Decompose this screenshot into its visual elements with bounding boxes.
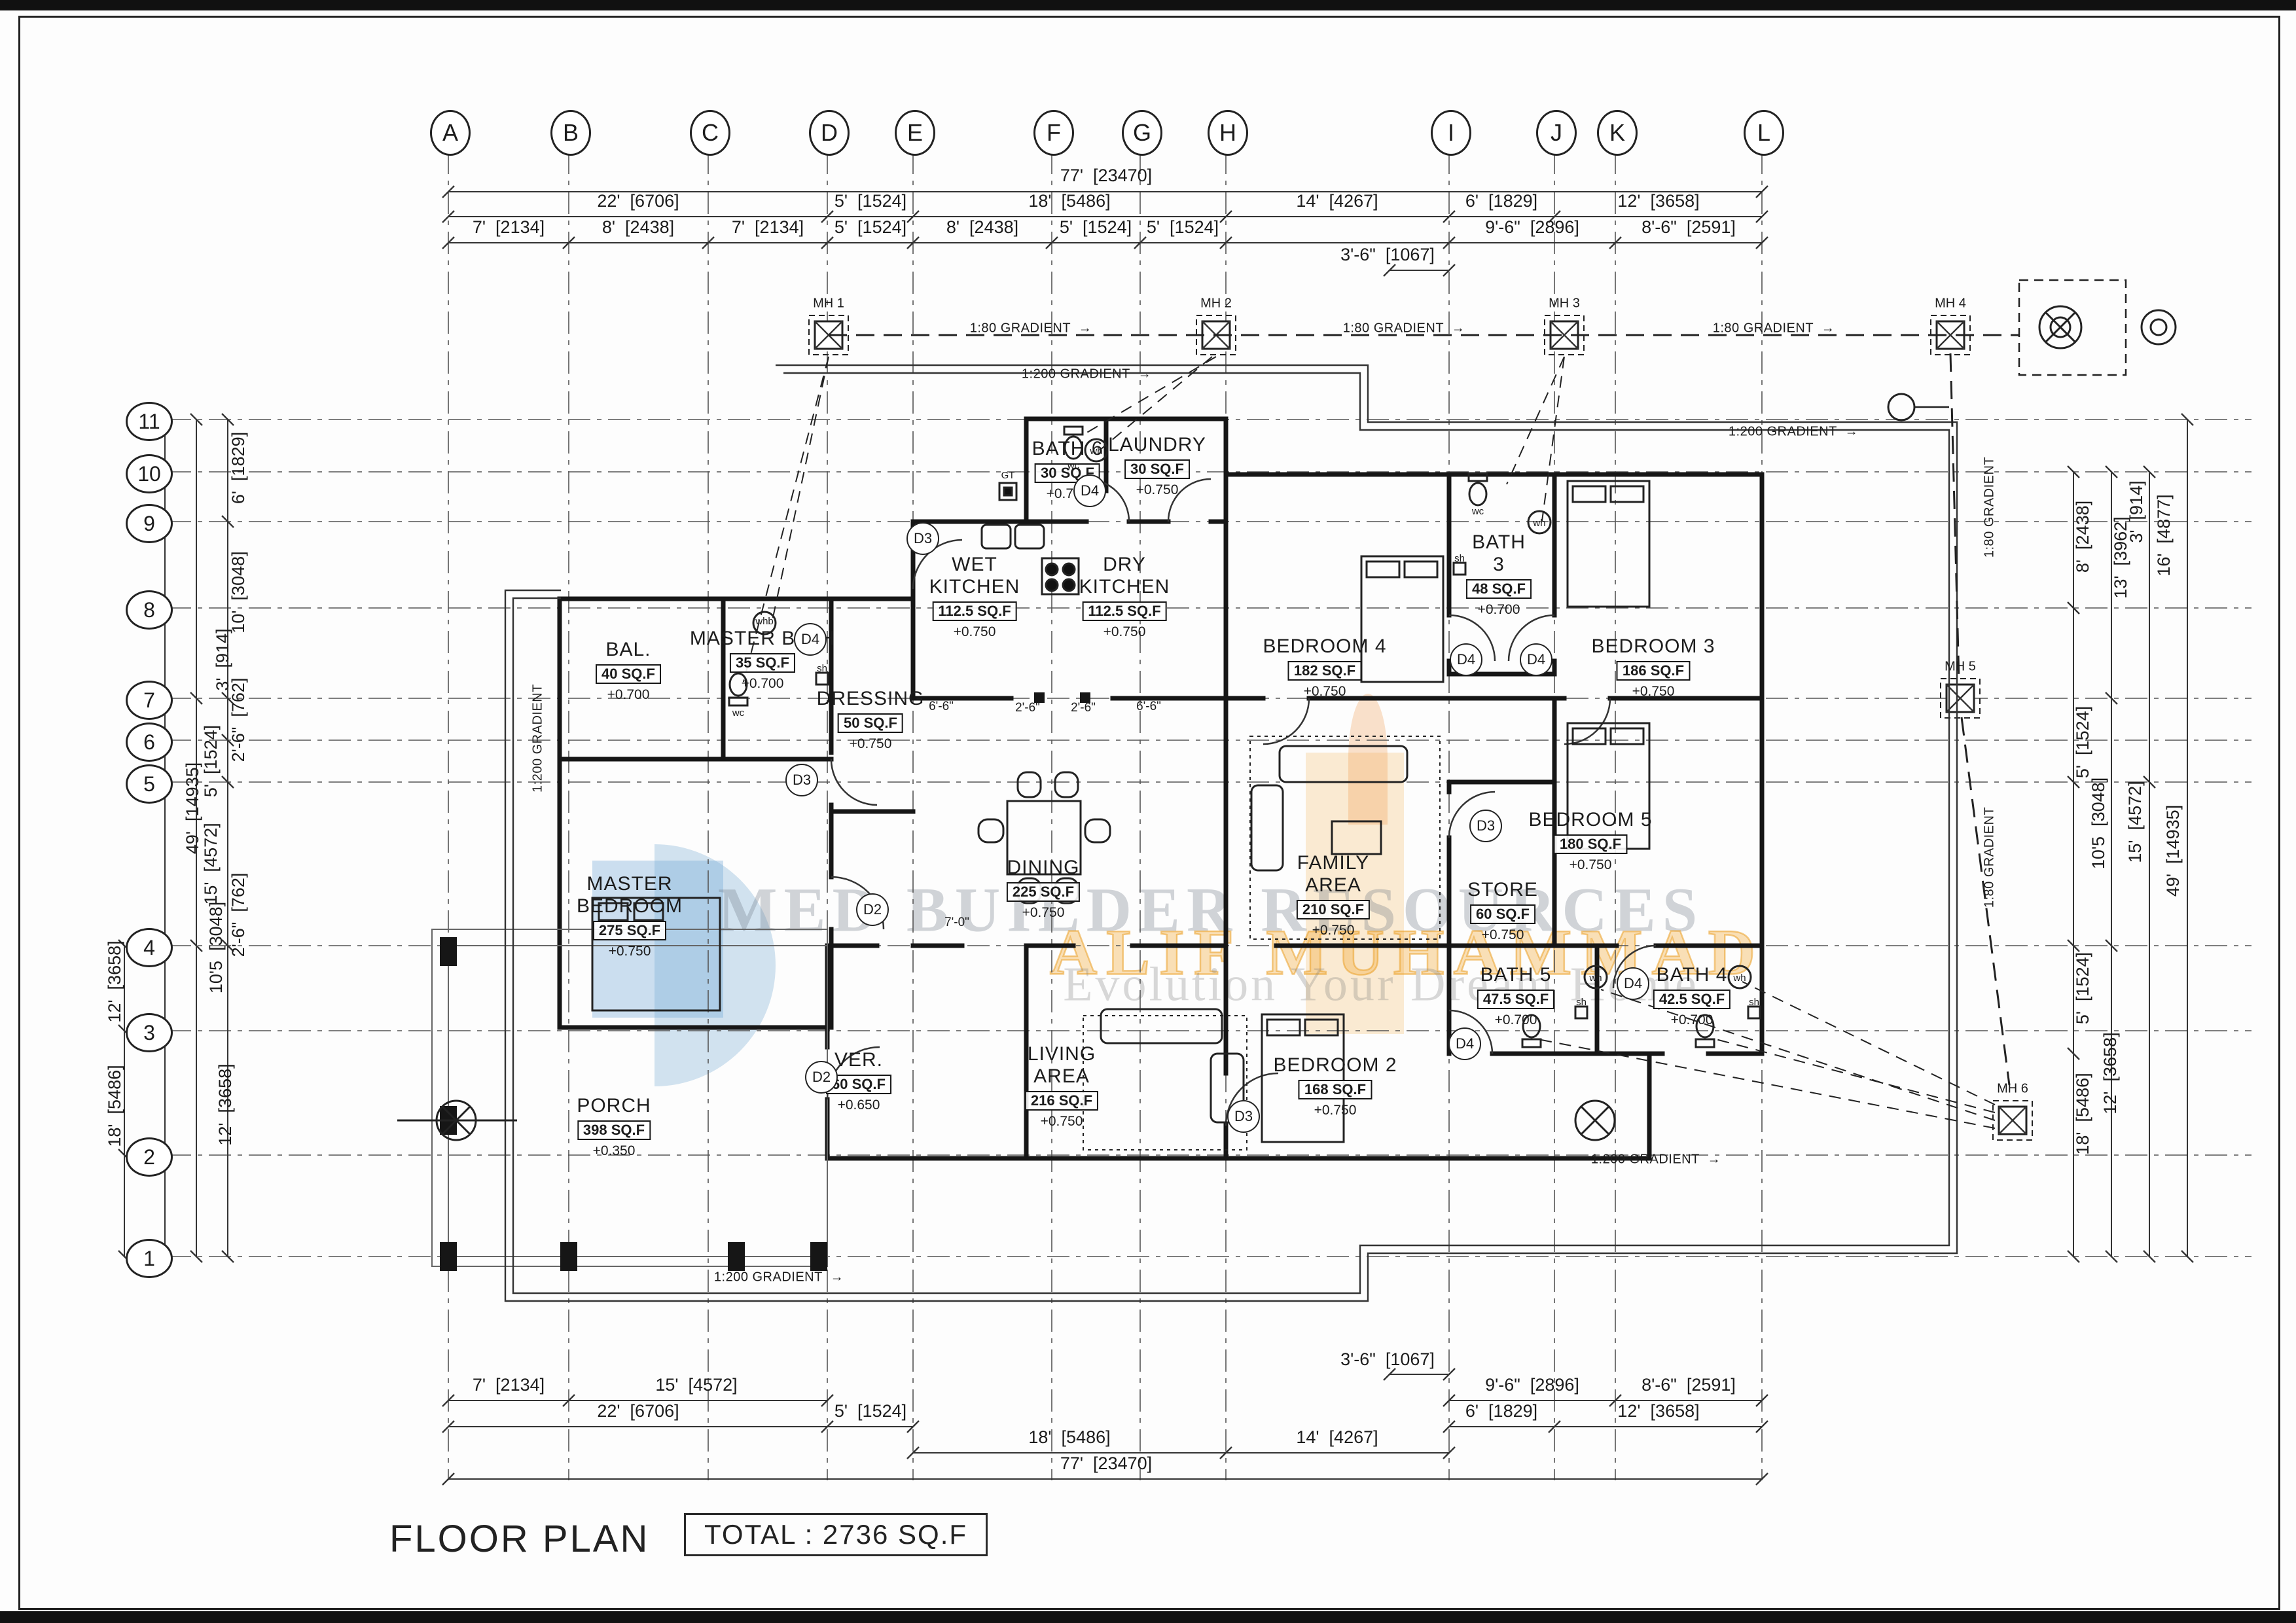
room-area-badge: 225 SQ.F bbox=[1007, 882, 1080, 902]
room-name: BEDROOM 5 bbox=[1528, 809, 1652, 831]
room-label: BEDROOM 3186 SQ.F+0.750 bbox=[1591, 635, 1715, 700]
room-label: WET KITCHEN112.5 SQ.F+0.750 bbox=[929, 554, 1020, 640]
room-label: DRY KITCHEN112.5 SQ.F+0.750 bbox=[1079, 554, 1170, 640]
gradient-label: 1:200 GRADIENT → bbox=[1729, 425, 1858, 439]
fixture-label: wh bbox=[1733, 973, 1746, 984]
grid-column-bubble: A bbox=[430, 110, 471, 156]
room-area-badge: 35 SQ.F bbox=[730, 653, 795, 673]
room-label: MASTER BEDROOM275 SQ.F+0.750 bbox=[577, 873, 683, 959]
dimension-label: 2'-6" [762] bbox=[229, 873, 247, 957]
dimension-label: 5' [1524] bbox=[1060, 218, 1132, 236]
room-name: BATH 4 bbox=[1657, 964, 1728, 986]
room-level: +0.700 bbox=[607, 687, 650, 703]
dimension-label: 18' [5486] bbox=[105, 1065, 124, 1147]
room-area-badge: 40 SQ.F bbox=[596, 664, 661, 684]
room-area-badge: 216 SQ.F bbox=[1025, 1091, 1098, 1111]
manhole-label: MH 2 bbox=[1200, 297, 1232, 311]
gradient-label: 1:200 GRADIENT → bbox=[1022, 368, 1151, 382]
grid-row-bubble: 3 bbox=[126, 1013, 173, 1052]
room-area-badge: 182 SQ.F bbox=[1288, 661, 1361, 681]
room-area-badge: 180 SQ.F bbox=[1554, 834, 1627, 854]
grid-column-bubble: E bbox=[895, 110, 935, 156]
door-tag: D4 bbox=[1448, 1027, 1481, 1060]
dimension-label: 5' [1524] bbox=[834, 218, 906, 236]
dimension-label: 7'-0" bbox=[944, 916, 969, 929]
gradient-label: 1:80 GRADIENT → bbox=[1713, 322, 1835, 336]
room-area-badge: 50 SQ.F bbox=[838, 713, 903, 733]
room-name: DRY KITCHEN bbox=[1079, 554, 1170, 598]
fixture-label: wh bbox=[1090, 446, 1102, 457]
grid-row-bubble: 10 bbox=[126, 454, 173, 493]
dimension-label: 16' [4877] bbox=[2155, 494, 2173, 576]
room-label: FAMILY AREA210 SQ.F+0.750 bbox=[1297, 852, 1370, 938]
room-level: +0.350 bbox=[593, 1143, 636, 1159]
room-area-badge: 186 SQ.F bbox=[1617, 661, 1690, 681]
gradient-label: 1:80 GRADIENT → bbox=[970, 322, 1092, 336]
manhole-label: MH 1 bbox=[813, 297, 844, 311]
fixture-label: wc bbox=[1472, 507, 1484, 517]
room-label: DINING225 SQ.F+0.750 bbox=[1007, 857, 1080, 921]
gradient-label: 1:200 GRADIENT → bbox=[1591, 1153, 1721, 1167]
total-area-box: TOTAL : 2736 SQ.F bbox=[684, 1513, 988, 1556]
fixture-label: sh bbox=[1454, 554, 1465, 564]
floor-plan-sheet: MED BUILDER RESOURCES ALIF MUHAMMAD Evol… bbox=[0, 0, 2296, 1623]
dimension-label: 12' [3658] bbox=[105, 940, 124, 1022]
fixture-label: sh bbox=[817, 664, 827, 674]
dimension-label: 12' [3658] bbox=[1617, 1402, 1699, 1420]
room-area-badge: 398 SQ.F bbox=[577, 1120, 651, 1140]
door-tag: D2 bbox=[805, 1061, 838, 1094]
room-name: BATH 3 bbox=[1472, 531, 1526, 576]
manhole-label: MH 3 bbox=[1549, 297, 1580, 311]
grid-row-bubble: 11 bbox=[126, 402, 173, 441]
room-level: +0.750 bbox=[850, 736, 892, 752]
room-area-badge: 275 SQ.F bbox=[593, 921, 666, 940]
grid-column-bubble: F bbox=[1033, 110, 1074, 156]
room-area-badge: 42.5 SQ.F bbox=[1653, 990, 1731, 1009]
room-name: WET KITCHEN bbox=[929, 554, 1020, 598]
room-name: LIVING AREA bbox=[1028, 1043, 1096, 1088]
room-area-badge: 60 SQ.F bbox=[1470, 904, 1535, 924]
room-level: +0.750 bbox=[1103, 624, 1146, 640]
grid-column-bubble: D bbox=[809, 110, 850, 156]
grid-column-bubble: G bbox=[1122, 110, 1162, 156]
dimension-label: 10'5 [3048] bbox=[2089, 777, 2108, 869]
room-name: PORCH bbox=[577, 1095, 651, 1117]
grid-row-bubble: 5 bbox=[126, 764, 173, 804]
dimension-label: 12' [3658] bbox=[216, 1063, 234, 1145]
labels-layer: FLOOR PLAN TOTAL : 2736 SQ.F ABCDEFGHIJK… bbox=[0, 0, 2296, 1623]
dimension-label: 8' [2438] bbox=[2073, 501, 2092, 573]
dimension-label: 12' [3658] bbox=[1617, 192, 1699, 210]
fixture-label: sh bbox=[1576, 997, 1587, 1008]
dimension-label: 3'-6" [1067] bbox=[1340, 1350, 1435, 1368]
room-area-badge: 168 SQ.F bbox=[1299, 1080, 1372, 1099]
room-level: +0.750 bbox=[1312, 923, 1355, 938]
door-tag: D2 bbox=[856, 893, 889, 926]
dimension-label: 7' [2134] bbox=[473, 218, 545, 236]
dimension-label: 15' [4572] bbox=[202, 823, 220, 904]
dimension-label: 8' [2438] bbox=[602, 218, 674, 236]
room-level: +0.750 bbox=[1632, 684, 1675, 700]
room-level: +0.650 bbox=[838, 1097, 880, 1113]
dimension-label: 3'-6" [1067] bbox=[1340, 245, 1435, 264]
room-level: +0.750 bbox=[1136, 482, 1179, 498]
dimension-label: 77' [23470] bbox=[1060, 166, 1152, 185]
room-name: STORE bbox=[1467, 879, 1538, 901]
room-level: +0.750 bbox=[1482, 927, 1524, 943]
fixture-label: wh bbox=[1589, 973, 1602, 984]
grid-row-bubble: 9 bbox=[126, 504, 173, 543]
dimension-label: 7' [2134] bbox=[473, 1376, 545, 1394]
dimension-label: 22' [6706] bbox=[597, 192, 679, 210]
dimension-label: 49' [14935] bbox=[183, 762, 202, 854]
door-tag: D3 bbox=[906, 522, 939, 555]
room-level: +0.750 bbox=[1304, 684, 1346, 700]
dimension-label: 9'-6" [2896] bbox=[1485, 1376, 1579, 1394]
fixture-label: GT bbox=[1001, 471, 1015, 481]
grid-row-bubble: 1 bbox=[126, 1239, 173, 1278]
room-label: BEDROOM 2168 SQ.F+0.750 bbox=[1273, 1054, 1397, 1118]
dimension-label: 6' [1829] bbox=[229, 432, 247, 504]
room-name: BEDROOM 2 bbox=[1273, 1054, 1397, 1077]
gradient-label: 1:200 GRADIENT → bbox=[714, 1271, 844, 1285]
manhole-label: MH 6 bbox=[1997, 1082, 2028, 1096]
fixture-label: wc bbox=[1067, 461, 1079, 471]
fixture-label: wc bbox=[732, 708, 744, 719]
room-name: LAUNDRY bbox=[1108, 434, 1206, 456]
room-name: DRESSING bbox=[817, 688, 925, 710]
room-level: +0.750 bbox=[609, 944, 651, 959]
room-level: +0.700 bbox=[742, 676, 784, 692]
door-tag: D3 bbox=[1469, 810, 1502, 842]
dimension-label: 13' [3962] bbox=[2111, 516, 2130, 598]
grid-column-bubble: L bbox=[1744, 110, 1784, 156]
dimension-label: 6' [1829] bbox=[1465, 192, 1537, 210]
room-label: BAL.40 SQ.F+0.700 bbox=[596, 639, 661, 703]
dimension-label: 12' [3658] bbox=[2101, 1032, 2119, 1114]
room-level: +0.750 bbox=[1570, 857, 1612, 873]
fixture-label: wh bbox=[1533, 518, 1545, 529]
room-label: LIVING AREA216 SQ.F+0.750 bbox=[1025, 1043, 1098, 1130]
dimension-label: 10' [3048] bbox=[229, 551, 247, 633]
room-label: BEDROOM 4182 SQ.F+0.750 bbox=[1263, 635, 1386, 700]
room-name: BATH 5 bbox=[1480, 964, 1552, 986]
grid-row-bubble: 6 bbox=[126, 722, 173, 762]
room-label: BATH 547.5 SQ.F+0.700 bbox=[1477, 964, 1554, 1028]
room-name: VER. bbox=[834, 1049, 883, 1071]
dimension-label: 9'-6" [2896] bbox=[1485, 218, 1579, 236]
dimension-label: 49' [14935] bbox=[2164, 805, 2182, 897]
room-name: DINING bbox=[1007, 857, 1080, 879]
room-area-badge: 48 SQ.F bbox=[1466, 579, 1532, 599]
room-level: +0.750 bbox=[1041, 1114, 1083, 1130]
gradient-label: 1:80 GRADIENT bbox=[1983, 807, 1997, 908]
room-label: LAUNDRY30 SQ.F+0.750 bbox=[1108, 434, 1206, 498]
grid-column-bubble: J bbox=[1536, 110, 1577, 156]
room-area-badge: 30 SQ.F bbox=[1124, 459, 1190, 479]
dimension-label: 5' [1524] bbox=[834, 192, 906, 210]
room-label: BATH 348 SQ.F+0.700 bbox=[1466, 531, 1532, 618]
dimension-label: 8'-6" [2591] bbox=[1641, 1376, 1736, 1394]
dimension-label: 5' [1524] bbox=[834, 1402, 906, 1420]
room-label: STORE60 SQ.F+0.750 bbox=[1467, 879, 1538, 943]
dimension-label: 18' [5486] bbox=[1028, 192, 1110, 210]
dimension-label: 7' [2134] bbox=[732, 218, 804, 236]
door-tag: D3 bbox=[785, 764, 818, 796]
room-name: MASTER BEDROOM bbox=[577, 873, 683, 918]
room-level: +0.750 bbox=[1022, 905, 1065, 921]
fixture-label: sh bbox=[1749, 997, 1759, 1008]
room-label: PORCH398 SQ.F+0.350 bbox=[577, 1095, 651, 1159]
room-level: +0.700 bbox=[1495, 1012, 1537, 1028]
grid-column-bubble: B bbox=[550, 110, 591, 156]
dimension-label: 6'-6" bbox=[1136, 700, 1161, 713]
dimension-label: 5' [1524] bbox=[2073, 952, 2092, 1024]
grid-row-bubble: 8 bbox=[126, 590, 173, 630]
door-tag: D4 bbox=[1617, 967, 1649, 1000]
dimension-label: 14' [4267] bbox=[1296, 1428, 1378, 1446]
gradient-label: 1:200 GRADIENT bbox=[531, 684, 545, 793]
room-name: BEDROOM 3 bbox=[1591, 635, 1715, 658]
manhole-label: MH 4 bbox=[1935, 297, 1966, 311]
room-level: +0.700 bbox=[1671, 1012, 1713, 1028]
room-label: BATH 442.5 SQ.F+0.700 bbox=[1653, 964, 1731, 1028]
door-tag: D4 bbox=[1450, 643, 1482, 676]
dimension-label: 6' [1829] bbox=[1465, 1402, 1537, 1420]
dimension-label: 15' [4572] bbox=[655, 1376, 737, 1394]
door-tag: D4 bbox=[1520, 643, 1552, 676]
dimension-label: 22' [6706] bbox=[597, 1402, 679, 1420]
room-level: +0.700 bbox=[1478, 602, 1520, 618]
grid-row-bubble: 4 bbox=[126, 928, 173, 967]
room-name: BAL. bbox=[605, 639, 651, 661]
gradient-label: 1:80 GRADIENT → bbox=[1343, 322, 1465, 336]
dimension-label: 15' [4572] bbox=[2126, 781, 2144, 863]
dimension-label: 18' [5486] bbox=[2073, 1073, 2092, 1154]
grid-row-bubble: 7 bbox=[126, 681, 173, 720]
room-label: BEDROOM 5180 SQ.F+0.750 bbox=[1528, 809, 1652, 873]
grid-column-bubble: C bbox=[690, 110, 730, 156]
door-tag: D4 bbox=[1073, 474, 1106, 507]
room-area-badge: 112.5 SQ.F bbox=[1082, 601, 1166, 621]
manhole-label: MH 5 bbox=[1945, 660, 1976, 674]
gradient-label: 1:80 GRADIENT bbox=[1983, 457, 1997, 558]
room-name: FAMILY AREA bbox=[1297, 852, 1369, 897]
dimension-label: 2'-6" [762] bbox=[229, 678, 247, 762]
grid-column-bubble: H bbox=[1208, 110, 1248, 156]
dimension-label: 5' [1524] bbox=[2073, 706, 2092, 778]
dimension-label: 10'5 [3048] bbox=[207, 902, 225, 993]
dimension-label: 5' [1524] bbox=[202, 725, 220, 797]
room-level: +0.750 bbox=[954, 624, 996, 640]
grid-column-bubble: K bbox=[1597, 110, 1638, 156]
grid-column-bubble: I bbox=[1431, 110, 1471, 156]
dimension-label: 77' [23470] bbox=[1060, 1454, 1152, 1472]
room-label: DRESSING50 SQ.F+0.750 bbox=[817, 688, 925, 752]
room-area-badge: 112.5 SQ.F bbox=[932, 601, 1016, 621]
dimension-label: 6'-6" bbox=[929, 700, 954, 713]
room-area-badge: 210 SQ.F bbox=[1297, 900, 1370, 919]
grid-row-bubble: 2 bbox=[126, 1137, 173, 1177]
dimension-label: 2'-6" bbox=[1015, 702, 1040, 715]
room-area-badge: 47.5 SQ.F bbox=[1477, 990, 1554, 1009]
dimension-label: 8' [2438] bbox=[946, 218, 1018, 236]
door-tag: D4 bbox=[794, 623, 827, 656]
dimension-label: 8'-6" [2591] bbox=[1641, 218, 1736, 236]
dimension-label: 2'-6" bbox=[1071, 702, 1096, 715]
room-level: +0.750 bbox=[1314, 1103, 1357, 1118]
dimension-label: 5' [1524] bbox=[1147, 218, 1219, 236]
dimension-label: 14' [4267] bbox=[1296, 192, 1378, 210]
fixture-label: whb bbox=[755, 616, 774, 627]
page-title: FLOOR PLAN bbox=[389, 1517, 649, 1561]
dimension-label: 18' [5486] bbox=[1028, 1428, 1110, 1446]
room-name: BEDROOM 4 bbox=[1263, 635, 1386, 658]
door-tag: D3 bbox=[1227, 1100, 1260, 1133]
